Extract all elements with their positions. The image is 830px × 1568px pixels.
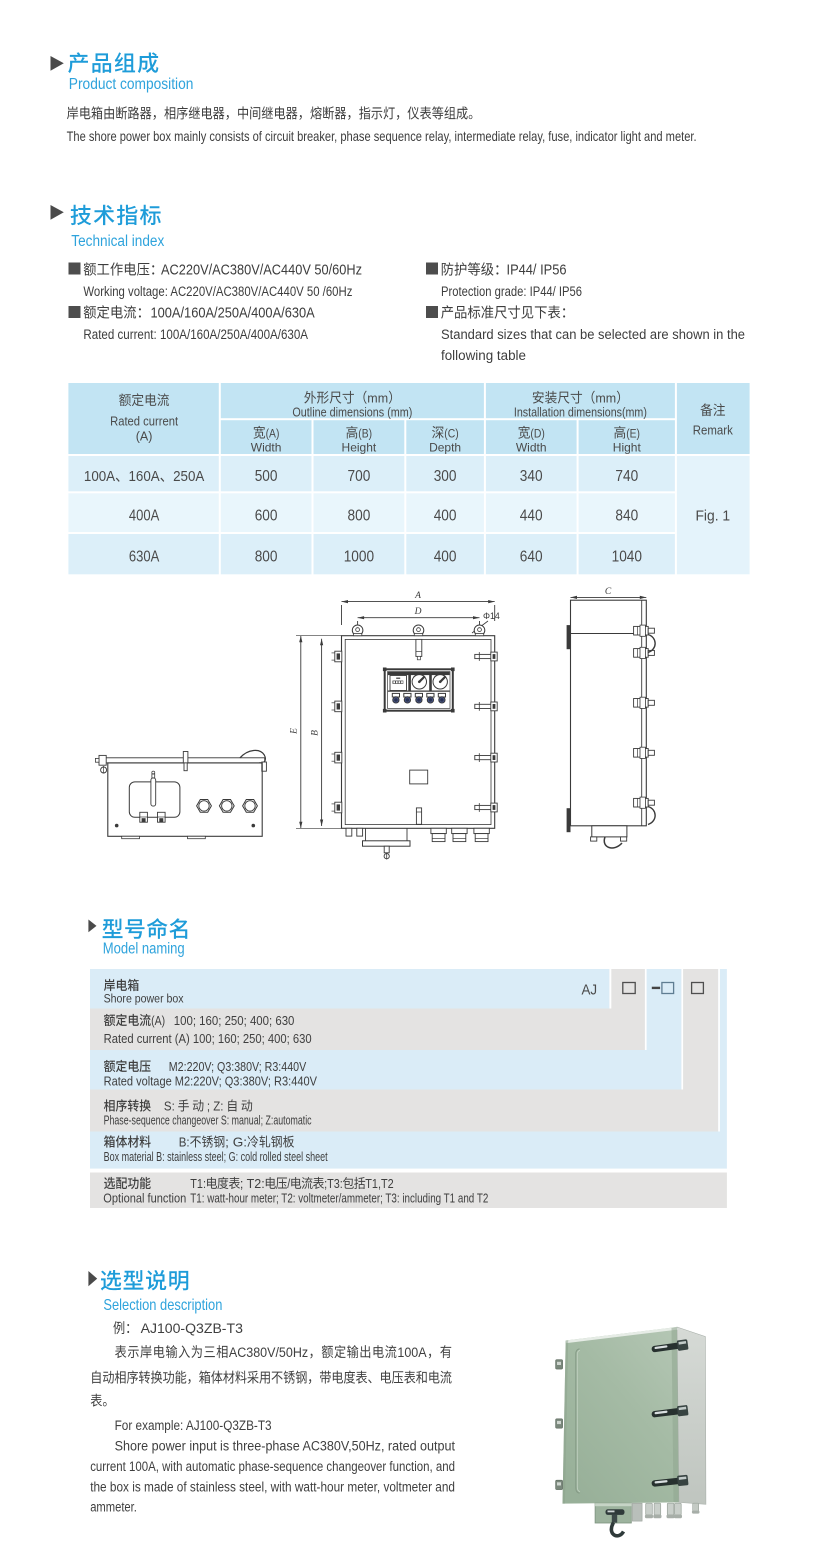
svg-text:Model naming: Model naming	[103, 941, 185, 958]
svg-text:(D): (D)	[530, 427, 544, 441]
svg-text:Rated current: 100A/160A/250A/: Rated current: 100A/160A/250A/400A/630A	[83, 327, 308, 342]
svg-text:340: 340	[520, 468, 543, 485]
svg-text:160A: 160A	[129, 468, 161, 485]
svg-text:400: 400	[434, 548, 457, 565]
svg-text:AC380V/50Hz: AC380V/50Hz	[229, 1345, 308, 1361]
svg-text:500: 500	[255, 468, 278, 485]
svg-text:400A: 400A	[129, 508, 160, 525]
svg-text:following table: following table	[441, 348, 526, 363]
svg-text:For example: AJ100-Q3ZB-T3: For example: AJ100-Q3ZB-T3	[115, 1418, 272, 1434]
svg-text:440: 440	[520, 508, 543, 525]
svg-text:600: 600	[255, 508, 278, 525]
svg-text:Product composition: Product composition	[69, 76, 194, 93]
svg-text:Shore power input is three: Shore power input is three-phase AC380V,…	[115, 1439, 455, 1455]
svg-text:; Z:: ; Z:	[207, 1099, 224, 1114]
svg-text:current 100A, with automatic p: current 100A, with automatic phase-seque…	[90, 1459, 455, 1475]
svg-text:AJ100-Q3ZB-T3: AJ100-Q3ZB-T3	[141, 1321, 243, 1337]
svg-text:the box is made of stainless s: the box is made of stainless steel, with…	[90, 1479, 455, 1495]
svg-text:630A: 630A	[129, 548, 160, 565]
svg-text:Height: Height	[342, 440, 377, 454]
svg-text:IP44/ IP56: IP44/ IP56	[507, 262, 567, 279]
svg-text:800: 800	[255, 548, 278, 565]
svg-text:(C): (C)	[444, 427, 458, 441]
svg-text:100; 160; 250; 400; 630: 100; 160; 250; 400; 630	[174, 1013, 295, 1028]
svg-text:100A: 100A	[397, 1345, 427, 1361]
svg-text:ammeter.: ammeter.	[90, 1500, 137, 1516]
svg-text:700: 700	[348, 468, 371, 485]
svg-text:C: C	[605, 587, 612, 597]
svg-text:Rated current: Rated current	[110, 415, 178, 429]
svg-text:T1,T2: T1,T2	[365, 1176, 393, 1191]
svg-text:S:: S:	[164, 1099, 175, 1114]
svg-text:400: 400	[434, 508, 457, 525]
svg-text:840: 840	[615, 508, 638, 525]
svg-text:AC220V/AC380V/AC440V 50/60Hz: AC220V/AC380V/AC440V 50/60Hz	[161, 262, 362, 279]
svg-text:mm: mm	[367, 392, 388, 406]
svg-text:Depth: Depth	[429, 440, 461, 454]
svg-text:Outline dimensions (mm): Outline dimensions (mm)	[292, 405, 412, 419]
svg-text:Box material B: stainless s: Box material B: stainless steel; G: cold…	[104, 1149, 328, 1164]
svg-text:(A): (A)	[136, 430, 153, 444]
svg-text:Standard sizes that can be: Standard sizes that can be selected are …	[441, 327, 745, 342]
svg-text:Fig. 1: Fig. 1	[695, 508, 730, 525]
svg-text:T1:: T1:	[190, 1176, 206, 1191]
svg-text:(A): (A)	[151, 1014, 165, 1028]
svg-text:Technical index: Technical index	[71, 233, 164, 250]
svg-text:1040: 1040	[612, 548, 642, 565]
svg-text:Shore power box: Shore power box	[104, 992, 184, 1006]
svg-text:Working voltage: AC220V/AC380V: Working voltage: AC220V/AC380V/AC440V 50…	[83, 284, 352, 299]
svg-text:AJ: AJ	[582, 983, 598, 999]
svg-text:640: 640	[520, 548, 543, 565]
svg-text:740: 740	[615, 468, 638, 485]
svg-text:100A/160A/250A/400A/630A: 100A/160A/250A/400A/630A	[151, 305, 315, 322]
svg-text:(A): (A)	[266, 427, 280, 441]
svg-text:Rated current (A) 100; 160; 25: Rated current (A) 100; 160; 250; 400; 63…	[104, 1031, 312, 1046]
svg-text:B:: B:	[179, 1135, 190, 1150]
svg-text:D: D	[414, 607, 422, 617]
svg-text:Protection grade: IP44/ IP56: Protection grade: IP44/ IP56	[441, 284, 582, 299]
svg-text:M2:220V; Q3:380V; R3:440V: M2:220V; Q3:380V; R3:440V	[169, 1059, 307, 1074]
svg-text:;T3:: ;T3:	[324, 1176, 343, 1191]
svg-text:mm: mm	[595, 392, 616, 406]
svg-text:/: /	[287, 1176, 290, 1191]
svg-text:(E): (E)	[626, 427, 640, 441]
svg-text:Phase-sequence changeover S:: Phase-sequence changeover S: manual; Z:a…	[104, 1113, 312, 1128]
svg-text:Width: Width	[516, 440, 547, 454]
svg-text:; G:: ; G:	[225, 1135, 247, 1150]
svg-text:100A: 100A	[84, 468, 116, 485]
svg-text:1000: 1000	[344, 548, 374, 565]
svg-text:Optional function: Optional function	[103, 1191, 186, 1206]
svg-text:T1: watt-hour meter; T2: voltm: T1: watt-hour meter; T2: voltmeter/ammet…	[190, 1191, 488, 1206]
svg-text:Selection description: Selection description	[103, 1297, 222, 1314]
svg-text:300: 300	[434, 468, 457, 485]
svg-text:; T2:: ; T2:	[240, 1176, 265, 1191]
svg-text:(B): (B)	[358, 427, 372, 441]
svg-text:Hight: Hight	[613, 440, 642, 454]
svg-text:Remark: Remark	[693, 424, 734, 438]
svg-text:800: 800	[348, 508, 371, 525]
svg-text:Rated voltage M2:220V; Q3:38: Rated voltage M2:220V; Q3:380V; R3:440V	[104, 1074, 318, 1089]
svg-text:E: E	[290, 728, 300, 735]
svg-text:250A: 250A	[173, 468, 205, 485]
svg-text:Width: Width	[251, 440, 282, 454]
svg-text:Installation dimensions(mm): Installation dimensions(mm)	[514, 405, 647, 419]
svg-text:Φ14: Φ14	[483, 611, 500, 621]
svg-text:A: A	[414, 591, 421, 601]
svg-text:B: B	[311, 730, 321, 736]
svg-text:The shore power box mainly con: The shore power box mainly consists of c…	[67, 129, 697, 144]
